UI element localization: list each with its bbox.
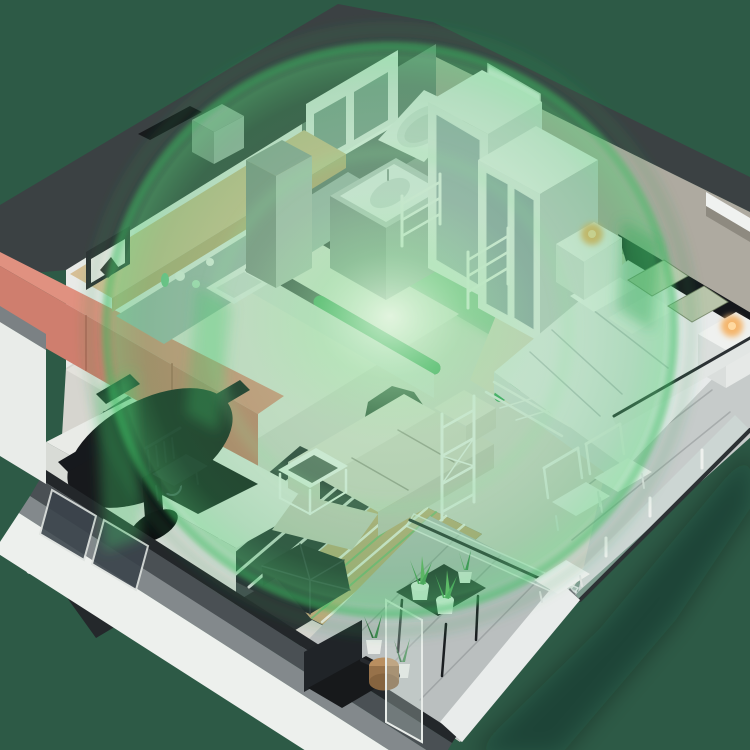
floorplan-render bbox=[0, 0, 750, 750]
scene-svg bbox=[0, 0, 750, 750]
left-wall-white-sliver bbox=[0, 322, 46, 484]
coverage-beam-left bbox=[96, 370, 142, 552]
lamp2-shade bbox=[728, 322, 736, 330]
floor-plant-pot-1 bbox=[366, 640, 382, 654]
balcony-glass-divider bbox=[386, 600, 422, 742]
coverage-center-glow bbox=[240, 191, 540, 441]
